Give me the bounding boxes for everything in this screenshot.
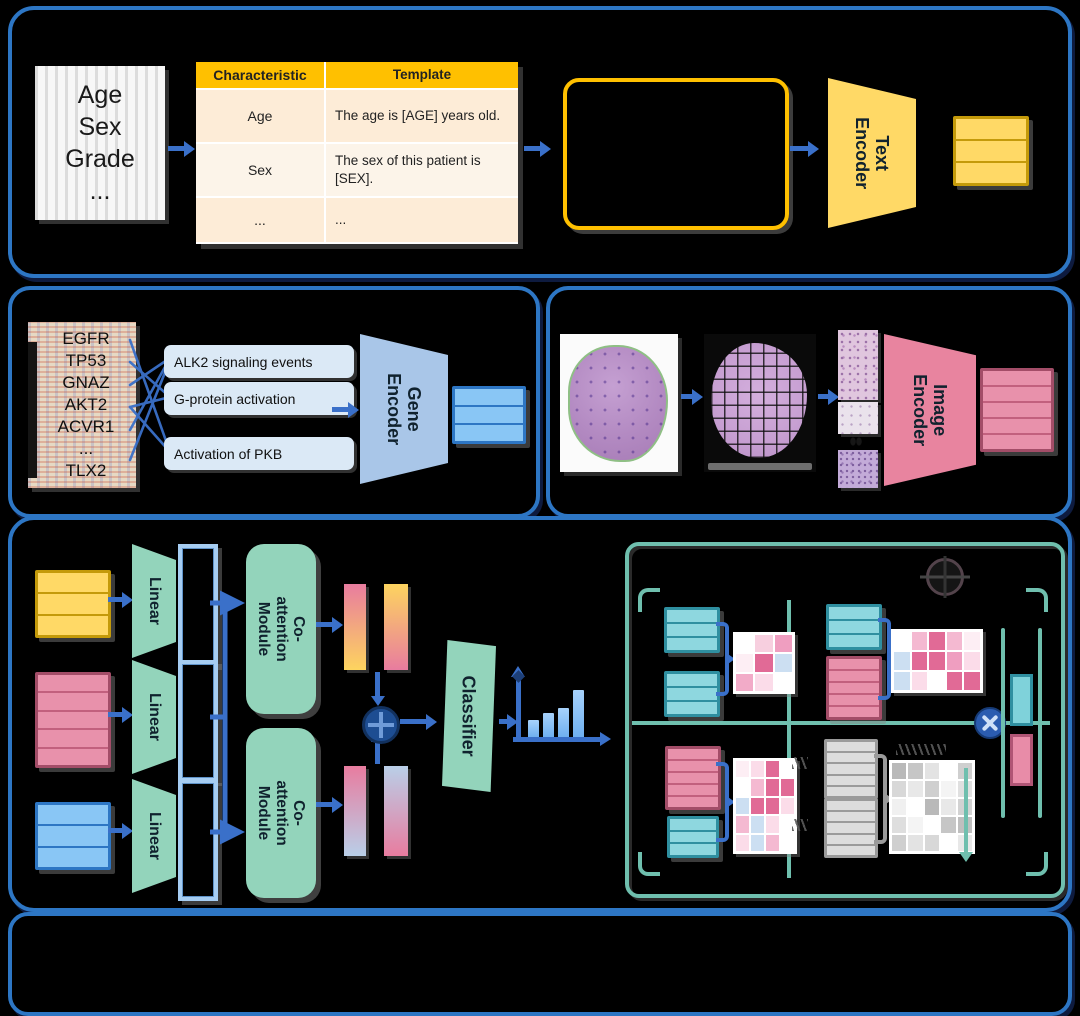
- attention-heatmap-bottom-left: [733, 758, 797, 854]
- text-encoder: Text Encoder: [828, 78, 916, 228]
- gene-expression-image: EGFR TP53 GNAZ AKT2 ACVR1 ... TLX2: [28, 322, 136, 488]
- detail-teal-arrow: [964, 768, 968, 852]
- attended-feature-bar-yellow-pink: [384, 584, 408, 670]
- coattention-module-1: Co-attention Module: [246, 544, 316, 714]
- classifier-label: Classifier: [459, 675, 479, 756]
- table-row: ... ...: [196, 198, 518, 244]
- image-embedding-box: [980, 368, 1054, 452]
- output-chart-x-axis: [513, 737, 601, 742]
- coattention-label: Co-attention Module: [255, 594, 307, 664]
- coattention-label: Co-attention Module: [255, 778, 307, 848]
- patch-image: [838, 402, 878, 434]
- doc-line: Grade: [65, 143, 134, 175]
- arrow-image-to-linear: [108, 712, 122, 717]
- arrow-coattn1-out: [316, 622, 332, 627]
- attention-heatmap-top-right: [891, 629, 983, 693]
- gene-embedding-input: [35, 802, 111, 870]
- gene-label: GNAZ: [54, 372, 109, 394]
- image-encoder-label: Image Encoder: [910, 364, 950, 456]
- detail-right-bracket: [1001, 628, 1005, 818]
- gene-label: TP53: [58, 350, 107, 372]
- linear-layer-image: Linear: [132, 660, 176, 774]
- gene-encoder-label: Gene Encoder: [384, 365, 424, 453]
- patch-ellipsis: [850, 437, 862, 446]
- patch-image: [838, 330, 878, 400]
- table-row: Sex The sex of this patient is [SEX].: [196, 144, 518, 198]
- doc-line: ...: [90, 175, 111, 207]
- gene-label: AKT2: [57, 394, 108, 416]
- image-embedding-input: [35, 672, 111, 768]
- text-embedding-input: [35, 570, 111, 638]
- prompt-box: [563, 78, 789, 230]
- attention-heatmap-gray: [889, 760, 975, 854]
- attention-heatmap-top-left: [733, 632, 795, 694]
- snowflake-icon: [926, 558, 964, 596]
- output-probability-bars: [528, 689, 598, 737]
- detail-query-box: [826, 604, 882, 650]
- table-header-characteristic: Characteristic: [196, 62, 326, 88]
- attended-feature-bar-pink-yellow: [344, 584, 366, 670]
- linear-label: Linear: [145, 693, 163, 741]
- gene-label: ...: [71, 438, 93, 460]
- architecture-figure: { "clinical": { "document_lines": ["Age"…: [0, 0, 1080, 1014]
- row-characteristic: Sex: [196, 144, 326, 196]
- gene-label: TLX2: [58, 460, 107, 482]
- arrow-gene-to-linear: [108, 828, 122, 833]
- arrow-coattn2-out: [316, 802, 332, 807]
- row-characteristic: Age: [196, 90, 326, 142]
- gene-label: ACVR1: [50, 416, 115, 438]
- arrow-top-features-to-fusion: [375, 672, 380, 696]
- detail-bracket-corner: [1026, 852, 1048, 876]
- detail-bracket-arrow-gray: [874, 754, 887, 844]
- row-characteristic: ...: [196, 198, 326, 242]
- detail-gray-box: [824, 798, 878, 858]
- table-row: Age The age is [AGE] years old.: [196, 90, 518, 144]
- detail-query-box: [665, 746, 721, 810]
- row-template: ...: [326, 198, 518, 242]
- detail-right-bracket: [1038, 628, 1042, 818]
- text-embedding-box: [953, 116, 1029, 186]
- linear-layer-text: Linear: [132, 544, 176, 658]
- classifier: Classifier: [442, 640, 496, 792]
- arrow-fusion-to-classifier: [400, 719, 426, 724]
- tissue-grid-blob: [711, 343, 807, 458]
- arrow-classifier-to-output: [499, 719, 507, 724]
- whole-slide-image: [560, 334, 678, 472]
- gene-embedding-box: [452, 386, 526, 444]
- arrow-pathways-to-gene-encoder: [332, 407, 348, 412]
- attended-feature-bar-blue-pink: [384, 766, 408, 856]
- output-chart-y-axis: [516, 676, 521, 740]
- detail-bracket-arrow: [878, 618, 891, 700]
- doc-line: Sex: [78, 111, 121, 143]
- detail-bracket-corner: [638, 852, 660, 876]
- pathway-label: Activation of PKB: [174, 446, 282, 462]
- arrow-bottom-features-to-fusion: [375, 742, 380, 764]
- text-encoder-label: Text Encoder: [852, 109, 892, 197]
- faded-formula-mark: [792, 757, 808, 769]
- faded-formula-mark: [792, 819, 808, 831]
- detail-key-box: [667, 816, 719, 858]
- gene-encoder: Gene Encoder: [360, 334, 448, 484]
- patch-image: [838, 450, 878, 488]
- row-template: The sex of this patient is [SEX].: [326, 144, 518, 196]
- circled-plus-fusion-icon: [362, 706, 400, 744]
- arrow-grid-to-patches: [818, 394, 828, 399]
- detail-output-bar-cyan: [1010, 674, 1033, 726]
- patched-slide-image: [704, 334, 816, 472]
- detail-bracket-corner: [638, 588, 660, 612]
- table-header-template: Template: [326, 62, 518, 88]
- row-template: The age is [AGE] years old.: [326, 90, 518, 142]
- detail-key-box: [664, 671, 720, 717]
- linear-layer-gene: Linear: [132, 779, 176, 893]
- pathway-label: ALK2 signaling events: [174, 354, 313, 370]
- tissue-blob: [568, 345, 668, 462]
- image-encoder: Image Encoder: [884, 334, 976, 486]
- attended-feature-bar-pink-blue: [344, 766, 366, 856]
- template-table: Characteristic Template Age The age is […: [196, 62, 518, 244]
- arrow-wsi-to-grid: [681, 394, 692, 399]
- linear-label: Linear: [145, 812, 163, 860]
- detail-bracket-arrow: [716, 762, 729, 842]
- pathway-label: G-protein activation: [174, 391, 295, 407]
- legend-panel: [8, 912, 1072, 1016]
- output-chart-x-arrowhead: [600, 732, 611, 746]
- faded-formula-mark: [896, 744, 946, 755]
- doc-line: Age: [78, 79, 122, 111]
- detail-gray-box: [824, 739, 878, 799]
- table-header-row: Characteristic Template: [196, 62, 518, 90]
- arrow-table-to-prompt: [524, 146, 540, 151]
- pathway-box: Activation of PKB: [164, 437, 354, 470]
- arrow-prompt-to-text-encoder: [790, 146, 808, 151]
- arrow-doc-to-table: [168, 146, 184, 151]
- arrow-text-to-linear: [108, 597, 122, 602]
- gene-label: EGFR: [54, 328, 109, 350]
- detail-query-box: [664, 607, 720, 653]
- detail-key-box: [826, 656, 882, 720]
- detail-bracket-arrow: [716, 622, 729, 696]
- coattention-module-2: Co-attention Module: [246, 728, 316, 898]
- linear-label: Linear: [145, 577, 163, 625]
- clinical-record-image: Age Sex Grade ...: [35, 66, 165, 220]
- pathway-box: ALK2 signaling events: [164, 345, 354, 378]
- detail-bracket-corner: [1026, 588, 1048, 612]
- pathway-box: G-protein activation: [164, 382, 354, 415]
- detail-output-bar-pink: [1010, 734, 1033, 786]
